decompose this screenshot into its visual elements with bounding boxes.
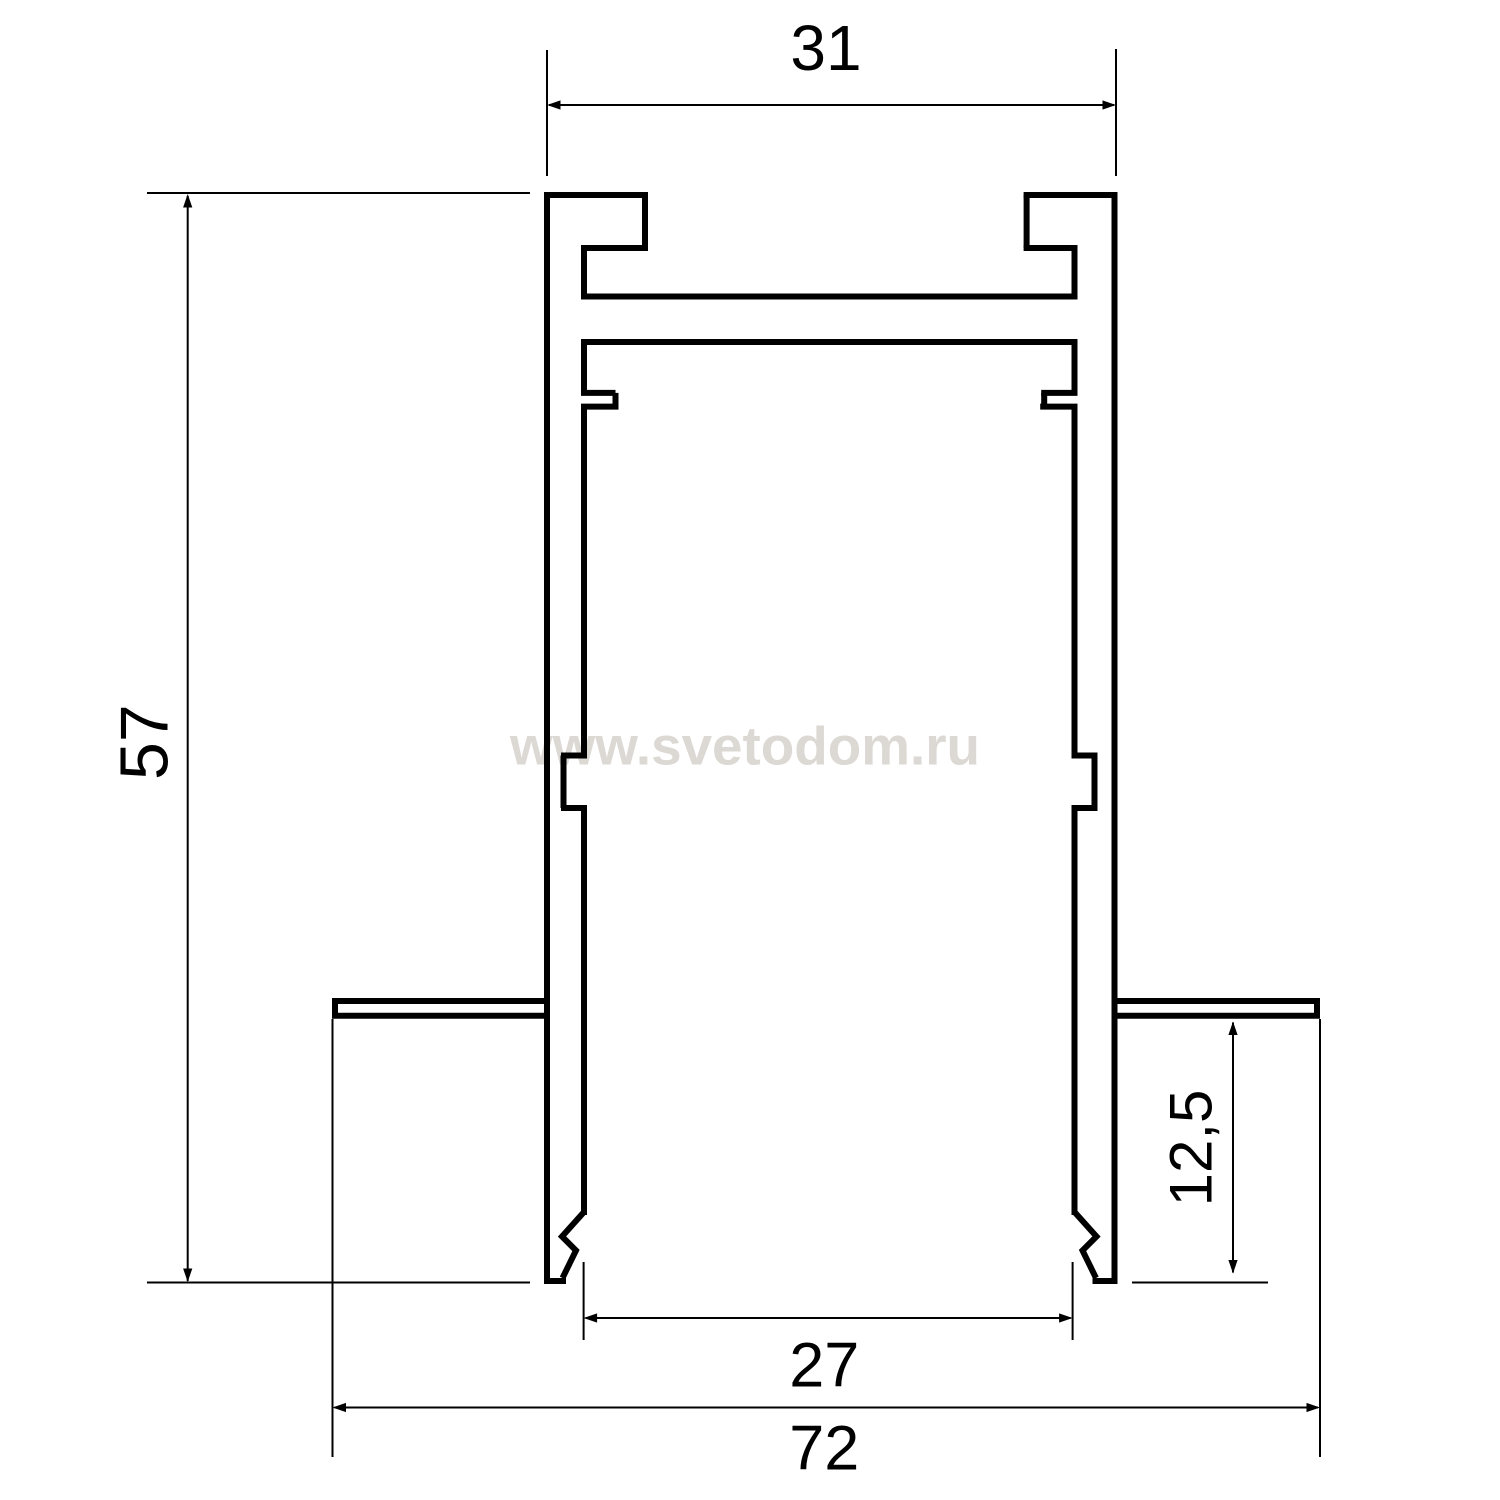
svg-text:27: 27 xyxy=(789,1331,859,1401)
svg-text:12,5: 12,5 xyxy=(1158,1090,1225,1207)
svg-text:72: 72 xyxy=(789,1414,859,1484)
svg-text:31: 31 xyxy=(790,12,861,84)
svg-text:www.svetodom.ru: www.svetodom.ru xyxy=(509,717,980,777)
svg-text:57: 57 xyxy=(107,704,183,780)
